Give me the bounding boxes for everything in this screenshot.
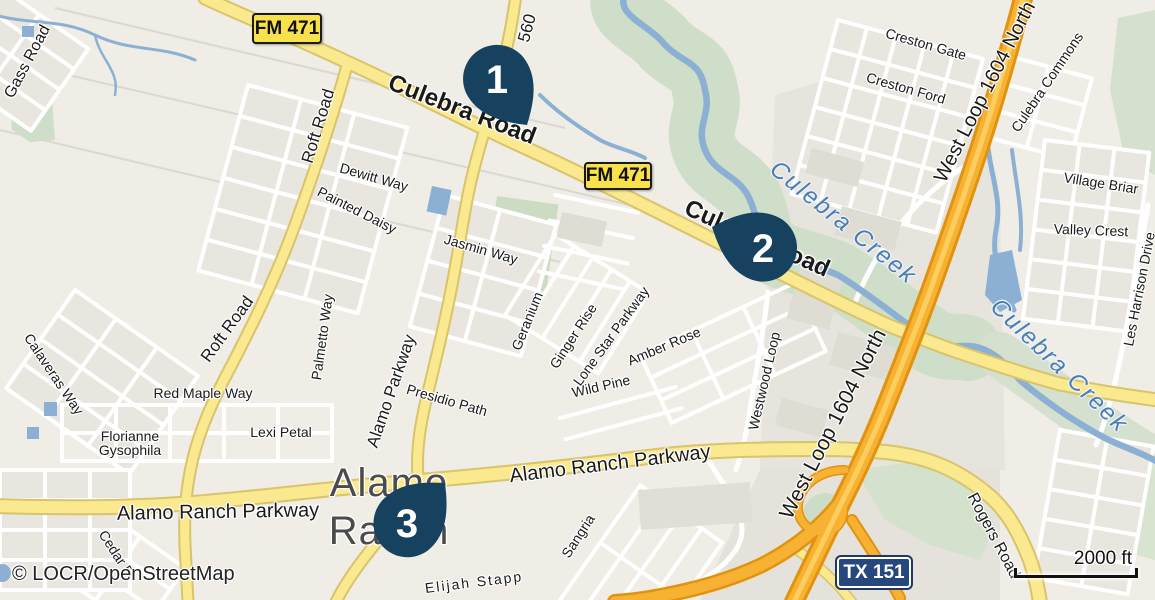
street-label-florianne: Florianne [99,429,161,443]
route-shield-fm471-top: FM 471 [252,13,322,44]
scale-bar-label: 2000 ft [1014,548,1132,570]
road-label-alamo-ranch-parkway-west: Alamo Ranch Parkway [117,500,320,524]
street-label-valley-crest: Valley Crest [1054,222,1129,239]
street-label-lexi-petal: Lexi Petal [250,425,311,439]
map-attribution: © LOCR/OpenStreetMap [12,563,235,586]
street-label-red-maple-way: Red Maple Way [153,386,252,400]
map-marker-1-number: 1 [486,58,508,102]
street-label-florianne-gysophila: Florianne Gysophila [99,429,161,457]
scale-bar [1014,568,1138,578]
route-shield-tx151: TX 151 [837,557,911,588]
map-marker-2-number: 2 [752,227,774,271]
street-label-gysophila: Gysophila [99,443,161,457]
map-marker-3-number: 3 [396,502,418,546]
map-viewport: Gass Road Roft Road Dewitt Way Painted D… [0,0,1155,600]
route-shield-fm471-mid: FM 471 [584,162,652,190]
